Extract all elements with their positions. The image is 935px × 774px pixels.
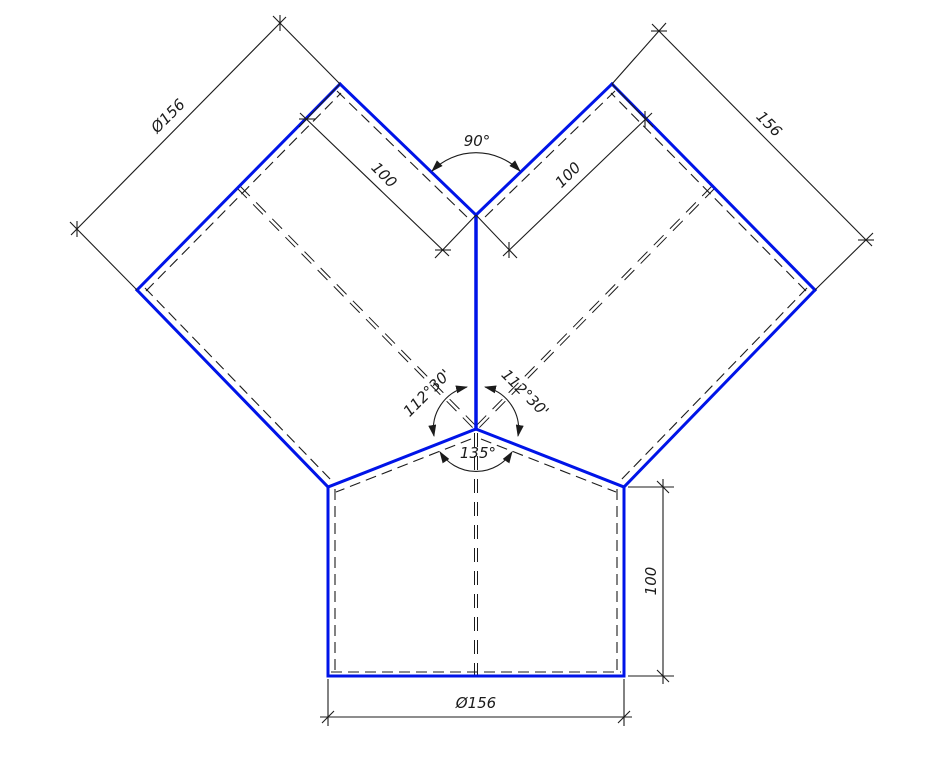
dim-label-outlet-diameter: Ø156 [455, 694, 496, 712]
angle-label-between-branches: 90° [464, 132, 491, 150]
background [0, 0, 935, 774]
dim-label-outlet-length: 100 [642, 567, 660, 596]
drawing-canvas: Ø156 156 100 100 100 Ø156 90° 112°30' 11… [0, 0, 935, 774]
angle-label-bottom: 135° [460, 444, 496, 462]
